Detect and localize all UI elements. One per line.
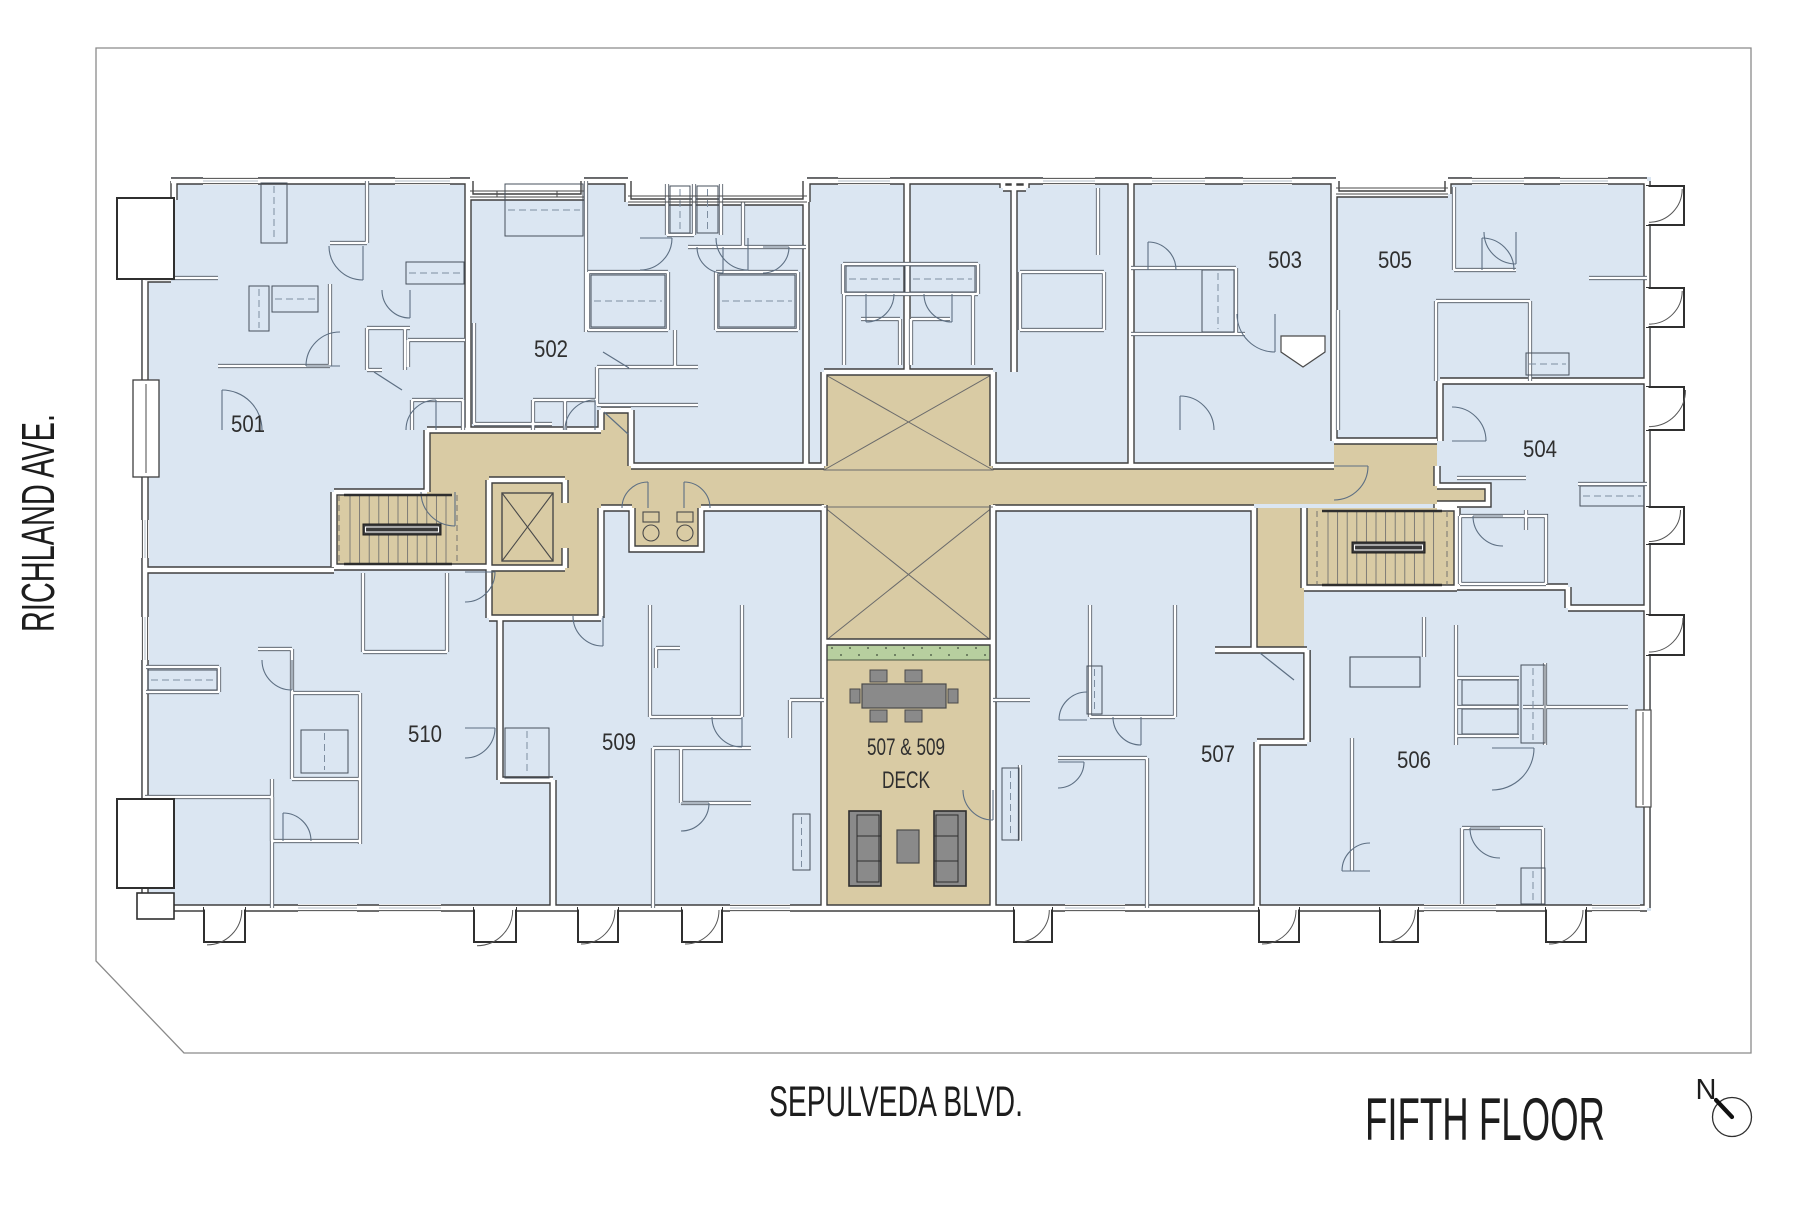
svg-text:503: 503 bbox=[1268, 247, 1302, 274]
svg-text:DECK: DECK bbox=[882, 767, 930, 794]
svg-text:FIFTH FLOOR: FIFTH FLOOR bbox=[1365, 1086, 1605, 1153]
svg-text:505: 505 bbox=[1378, 247, 1412, 274]
svg-text:501: 501 bbox=[231, 411, 265, 438]
svg-text:502: 502 bbox=[534, 336, 568, 363]
svg-text:507 & 509: 507 & 509 bbox=[867, 734, 945, 761]
svg-text:N: N bbox=[1696, 1074, 1717, 1106]
svg-text:507: 507 bbox=[1201, 741, 1235, 768]
svg-text:RICHLAND AVE.: RICHLAND AVE. bbox=[12, 414, 64, 632]
svg-text:SEPULVEDA BLVD.: SEPULVEDA BLVD. bbox=[769, 1078, 1023, 1126]
svg-text:509: 509 bbox=[602, 729, 636, 756]
svg-text:510: 510 bbox=[408, 721, 442, 748]
svg-text:504: 504 bbox=[1523, 436, 1557, 463]
svg-text:506: 506 bbox=[1397, 747, 1431, 774]
